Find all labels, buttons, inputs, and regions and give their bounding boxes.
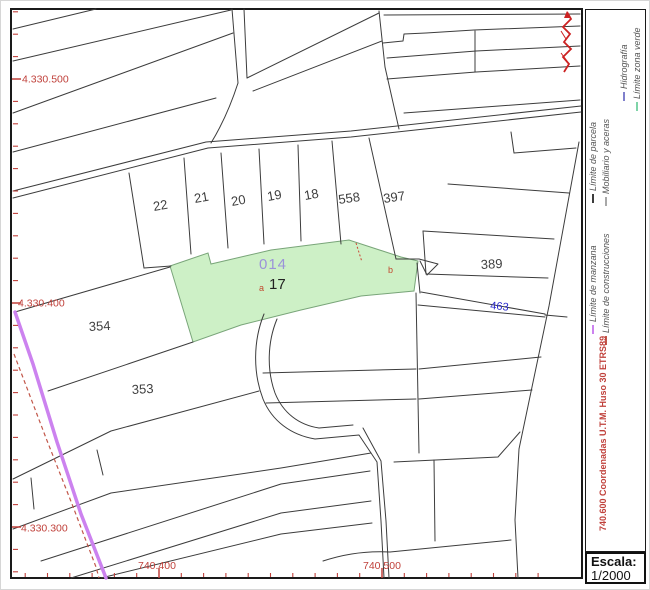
y-coordinate-label: 4.330.300 (21, 523, 68, 535)
legend-item-limite-manzana: Límite de manzana (587, 245, 598, 334)
x-coordinate-label: 740.500 (363, 560, 401, 572)
y-coordinate-label: 4.330.400 (18, 298, 65, 310)
legend-label: Mobiliario y aceras (601, 119, 611, 194)
legend-label: Hidrografía (619, 44, 629, 89)
parcel-label: 389 (480, 256, 502, 272)
x-coordinate-label: 740.400 (138, 560, 176, 572)
y-coordinate-label: 4.330.500 (22, 74, 69, 86)
parcel-label: 22 (152, 197, 169, 214)
parcel-17-label: 17 (269, 276, 286, 293)
cadastral-map-sheet: 4.330.500 4.330.400 4.330.300 740.400 74… (0, 0, 650, 590)
legend-item-hidrografia: Hidrografía (618, 44, 629, 101)
legend-label: Límite de parcela (588, 122, 598, 191)
parcel-label: 20 (230, 192, 247, 209)
legend-label: Límite de manzana (588, 245, 598, 322)
legend-item-mobiliario: Mobiliario y aceras (600, 119, 611, 206)
legend-item-limite-construcciones: Límite de construcciones (600, 233, 611, 345)
parcel-label: 21 (193, 189, 210, 206)
parcel-label: 18 (303, 186, 320, 203)
scale-label: Escala: (591, 555, 644, 569)
legend-dash-mobiliario (605, 197, 607, 206)
parcel-label: 353 (131, 381, 153, 397)
legend-label: Límite de construcciones (601, 233, 611, 333)
legend-dash-hidrografia (623, 92, 625, 101)
parcel-label: 558 (337, 189, 361, 207)
road-463-label: 463 (490, 300, 509, 314)
manzana-code-label: 014 (259, 256, 287, 273)
subparcel-b-label: b (388, 265, 393, 275)
crs-coordinates-note: 740.600 Coordenadas U.T.M. Huso 30 ETRS8… (598, 336, 609, 531)
legend-item-limite-zona-verde: Límite zona verde (631, 27, 642, 111)
cadastral-map[interactable]: 4.330.500 4.330.400 4.330.300 740.400 74… (1, 1, 650, 590)
scale-value: 1/2000 (591, 569, 644, 583)
parcel-label: 354 (88, 318, 110, 334)
scale-box: Escala: 1/2000 (585, 552, 646, 584)
legend-dash-manzana (592, 325, 594, 334)
legend-dash-zona-verde (636, 102, 638, 111)
parcel-label: 397 (382, 188, 406, 206)
legend-item-limite-parcela: Límite de parcela (587, 122, 598, 203)
parcel-label: 19 (266, 187, 283, 204)
legend-dash-parcela (592, 194, 594, 203)
legend-label: Límite zona verde (632, 27, 642, 99)
subparcel-a-label: a (259, 283, 264, 293)
